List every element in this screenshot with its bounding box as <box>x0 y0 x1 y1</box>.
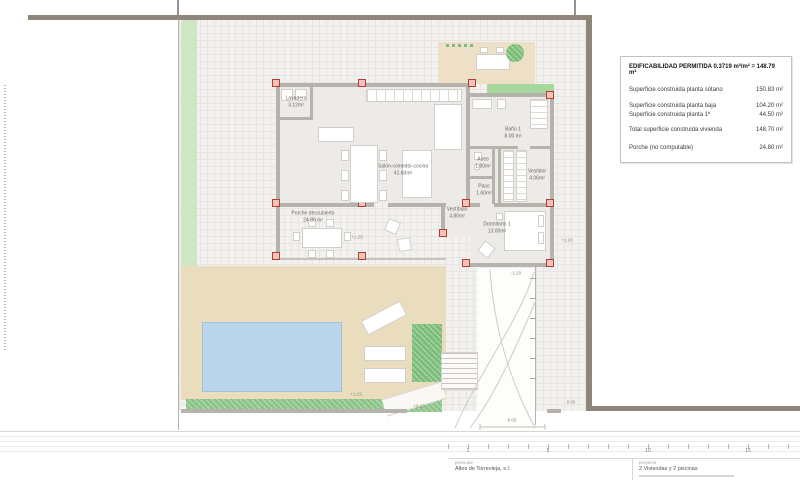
wardrobe <box>516 150 527 202</box>
room-label-paso: Paso1.60m² <box>476 184 492 197</box>
elevation-marker: +1.15 <box>350 392 361 397</box>
elevation-marker: +1.20 <box>561 238 572 243</box>
legend-row: Porche (no computable)24.80 m² <box>629 145 783 152</box>
floor-plan-sheet: Lavadero3.12m² Salón-comedor-cocina41.60… <box>0 0 800 480</box>
chair <box>341 150 349 161</box>
wall-aseo <box>468 176 495 179</box>
legend-row: Superficie construida planta sótano150.8… <box>629 87 783 94</box>
pillar <box>546 199 554 207</box>
pillar <box>272 199 280 207</box>
elevation-marker: +0.15 <box>413 404 424 409</box>
kitchen-tall-units <box>434 104 462 150</box>
wall <box>466 83 470 207</box>
lot-line <box>574 0 576 15</box>
kitchen-island <box>318 127 354 142</box>
elevation-marker: -1.20 <box>511 271 521 276</box>
wall <box>276 83 280 207</box>
chair <box>308 250 316 258</box>
site-wall-top <box>28 15 592 20</box>
chair <box>379 190 387 201</box>
road-line <box>0 436 800 437</box>
room-label-dormitorio: Dormitorio 113.00m² <box>483 222 510 235</box>
legend-title: EDIFICABILIDAD PERMITIDA 0.3719 m²/m² = … <box>629 64 783 76</box>
chair <box>344 232 351 241</box>
scale-number: 10 <box>645 448 651 454</box>
titleblock-divider <box>448 458 800 459</box>
road-line <box>0 451 800 452</box>
chair <box>326 250 334 258</box>
site-wall-bottom <box>181 409 407 413</box>
wall <box>388 203 446 207</box>
chair <box>293 232 300 241</box>
room-label-bano: Baño 18.00 m² <box>505 127 522 140</box>
wall <box>550 93 554 267</box>
kitchen-counter <box>366 89 462 102</box>
promotor-name: Altos de Torrevieja, s.l. <box>455 466 510 472</box>
legend-row: Total superficie construida vivienda148.… <box>629 127 783 134</box>
lot-line-left <box>178 19 179 430</box>
elevation-marker: 0.00 <box>567 400 576 405</box>
pillar <box>439 229 447 237</box>
wall <box>494 203 554 207</box>
lot-line <box>177 0 179 15</box>
scale-number: 5 <box>547 448 550 454</box>
shower <box>530 99 548 129</box>
room-label-vestidor: Vestidor4.06m² <box>528 169 546 182</box>
proyecto-name: 2 Viviendas y 2 piscinas <box>639 466 698 472</box>
chair <box>379 150 387 161</box>
wall-vestidor <box>498 148 501 204</box>
scale-number: 1 <box>467 448 470 454</box>
chair <box>341 170 349 181</box>
site-wall-bottom <box>547 409 561 413</box>
room-label-lavadero: Lavadero3.12m² <box>286 96 307 109</box>
elevation-marker: +1.20 <box>351 235 362 240</box>
room-label-salon: Salón-comedor-cocina41.60m² <box>378 164 428 177</box>
porch-table <box>302 228 342 248</box>
chair <box>341 190 349 201</box>
promotor-label: promotor <box>455 460 473 465</box>
pillar <box>272 252 280 260</box>
room-label-aseo: Aseo1.80m² <box>475 157 491 170</box>
bathtub <box>472 99 492 109</box>
site-wall-bottom-right <box>592 406 800 411</box>
road-line <box>0 441 800 442</box>
dimension-label: 6.00 <box>508 418 517 423</box>
nightstand <box>496 213 503 220</box>
lounge-chair <box>397 237 412 252</box>
road-edge <box>0 431 800 432</box>
wall <box>466 263 554 267</box>
titleblock-divider <box>632 458 633 480</box>
legend-row: Superficie construida planta 1ª44.50 m² <box>629 112 783 119</box>
wall <box>466 93 554 97</box>
pillow <box>538 232 544 244</box>
pillar <box>358 79 366 87</box>
pillar <box>462 259 470 267</box>
pillar <box>272 79 280 87</box>
wardrobe <box>503 150 514 202</box>
room-label-vestibulo: Vestíbulo4.80m² <box>447 207 468 220</box>
room-label-porche: Porche descubierto24.80 m² <box>291 211 334 224</box>
road-line <box>0 446 800 447</box>
pillar <box>358 252 366 260</box>
toilet <box>497 99 506 109</box>
pillar <box>468 79 476 87</box>
wall <box>276 83 466 87</box>
wall-laundry <box>310 85 313 119</box>
dining-table <box>350 145 378 203</box>
pillow <box>538 215 544 227</box>
scale-number: 15 <box>745 448 751 454</box>
legend-row: Superficie construida planta baja104.20 … <box>629 103 783 110</box>
pillar <box>546 259 554 267</box>
site-wall-right <box>586 15 592 411</box>
buildability-legend: EDIFICABILIDAD PERMITIDA 0.3719 m²/m² = … <box>620 56 792 163</box>
wall-laundry <box>278 117 313 120</box>
wall-bath <box>530 146 554 149</box>
project-address-fineprint <box>639 475 734 477</box>
pillar <box>546 91 554 99</box>
proyecto-label: proyecto <box>639 460 656 465</box>
